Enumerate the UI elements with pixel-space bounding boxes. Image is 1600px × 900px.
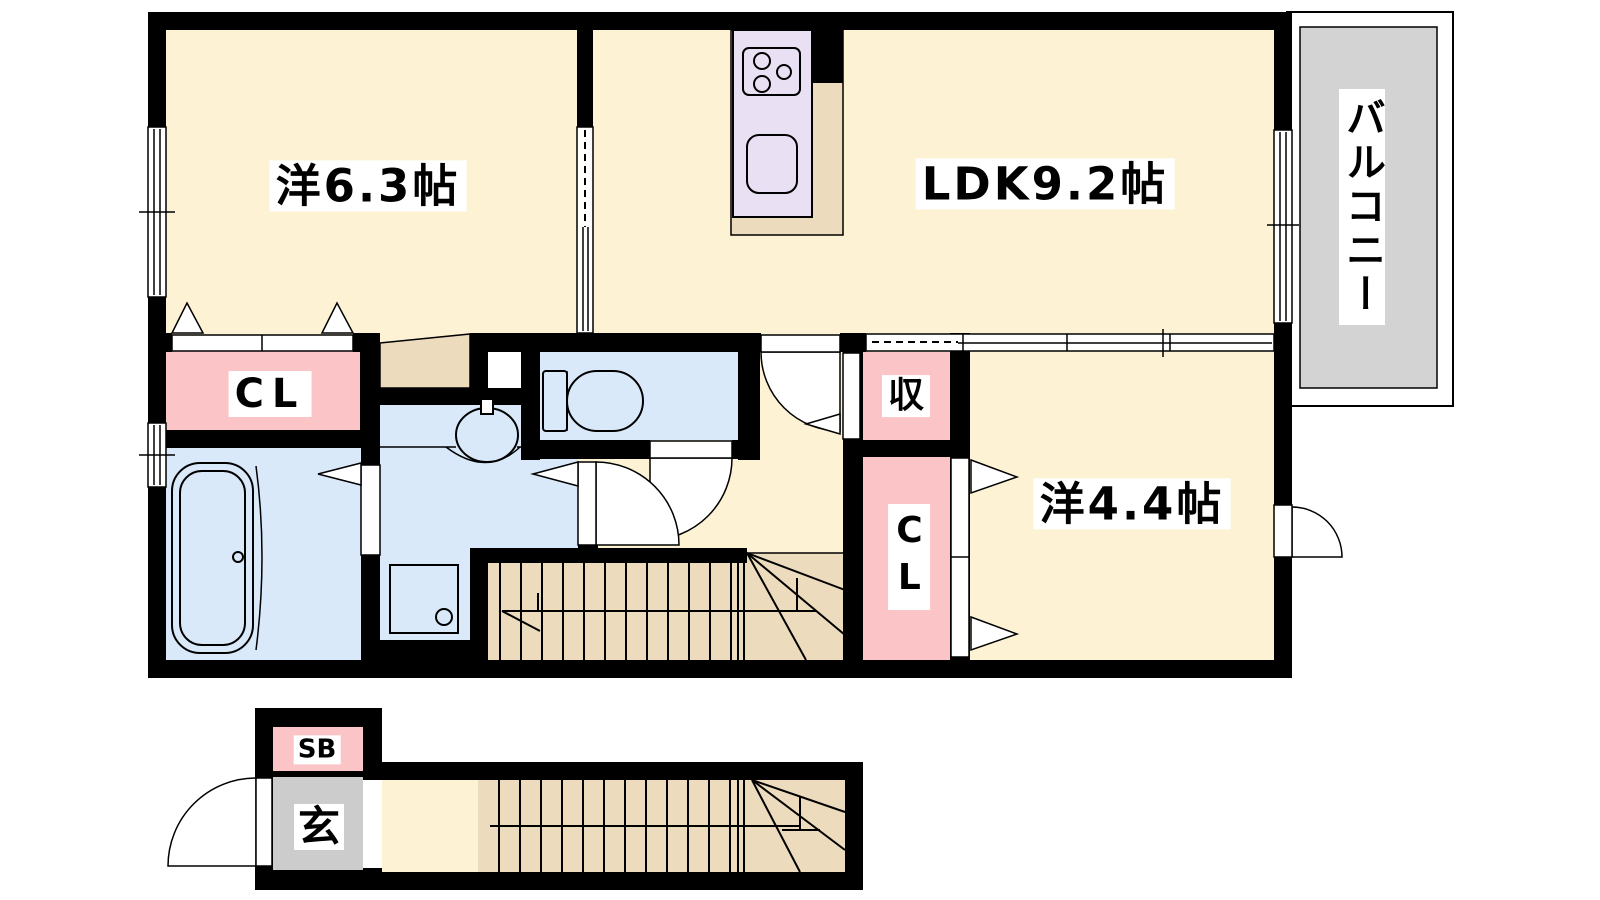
storage-nook bbox=[380, 334, 470, 388]
entrance-block bbox=[168, 708, 863, 890]
label-entrance: 玄 bbox=[294, 804, 344, 850]
door-entrance-icon bbox=[168, 778, 272, 866]
label-closet2: CL bbox=[888, 504, 930, 610]
label-balcony: バルコニー bbox=[1339, 89, 1385, 325]
toilet-floor bbox=[540, 352, 738, 440]
bathroom-floor bbox=[166, 448, 361, 660]
kitchen-counter bbox=[733, 30, 812, 217]
label-shoe-box: SB bbox=[294, 735, 341, 764]
label-bedroom2: 洋4.4帖 bbox=[1034, 478, 1231, 529]
sliding-door-bedroom1-icon bbox=[577, 127, 593, 333]
label-closet1: CL bbox=[229, 371, 312, 417]
label-ldk: LDK9.2帖 bbox=[916, 158, 1175, 209]
pipe-space bbox=[488, 352, 521, 388]
label-storage: 収 bbox=[882, 375, 930, 417]
door-exterior-bedroom2-icon bbox=[1274, 505, 1342, 557]
floorplan-canvas: 洋6.3帖 LDK9.2帖 洋4.4帖 CL 収 CL バルコニー SB 玄 bbox=[0, 0, 1600, 900]
label-bedroom1: 洋6.3帖 bbox=[270, 160, 467, 211]
